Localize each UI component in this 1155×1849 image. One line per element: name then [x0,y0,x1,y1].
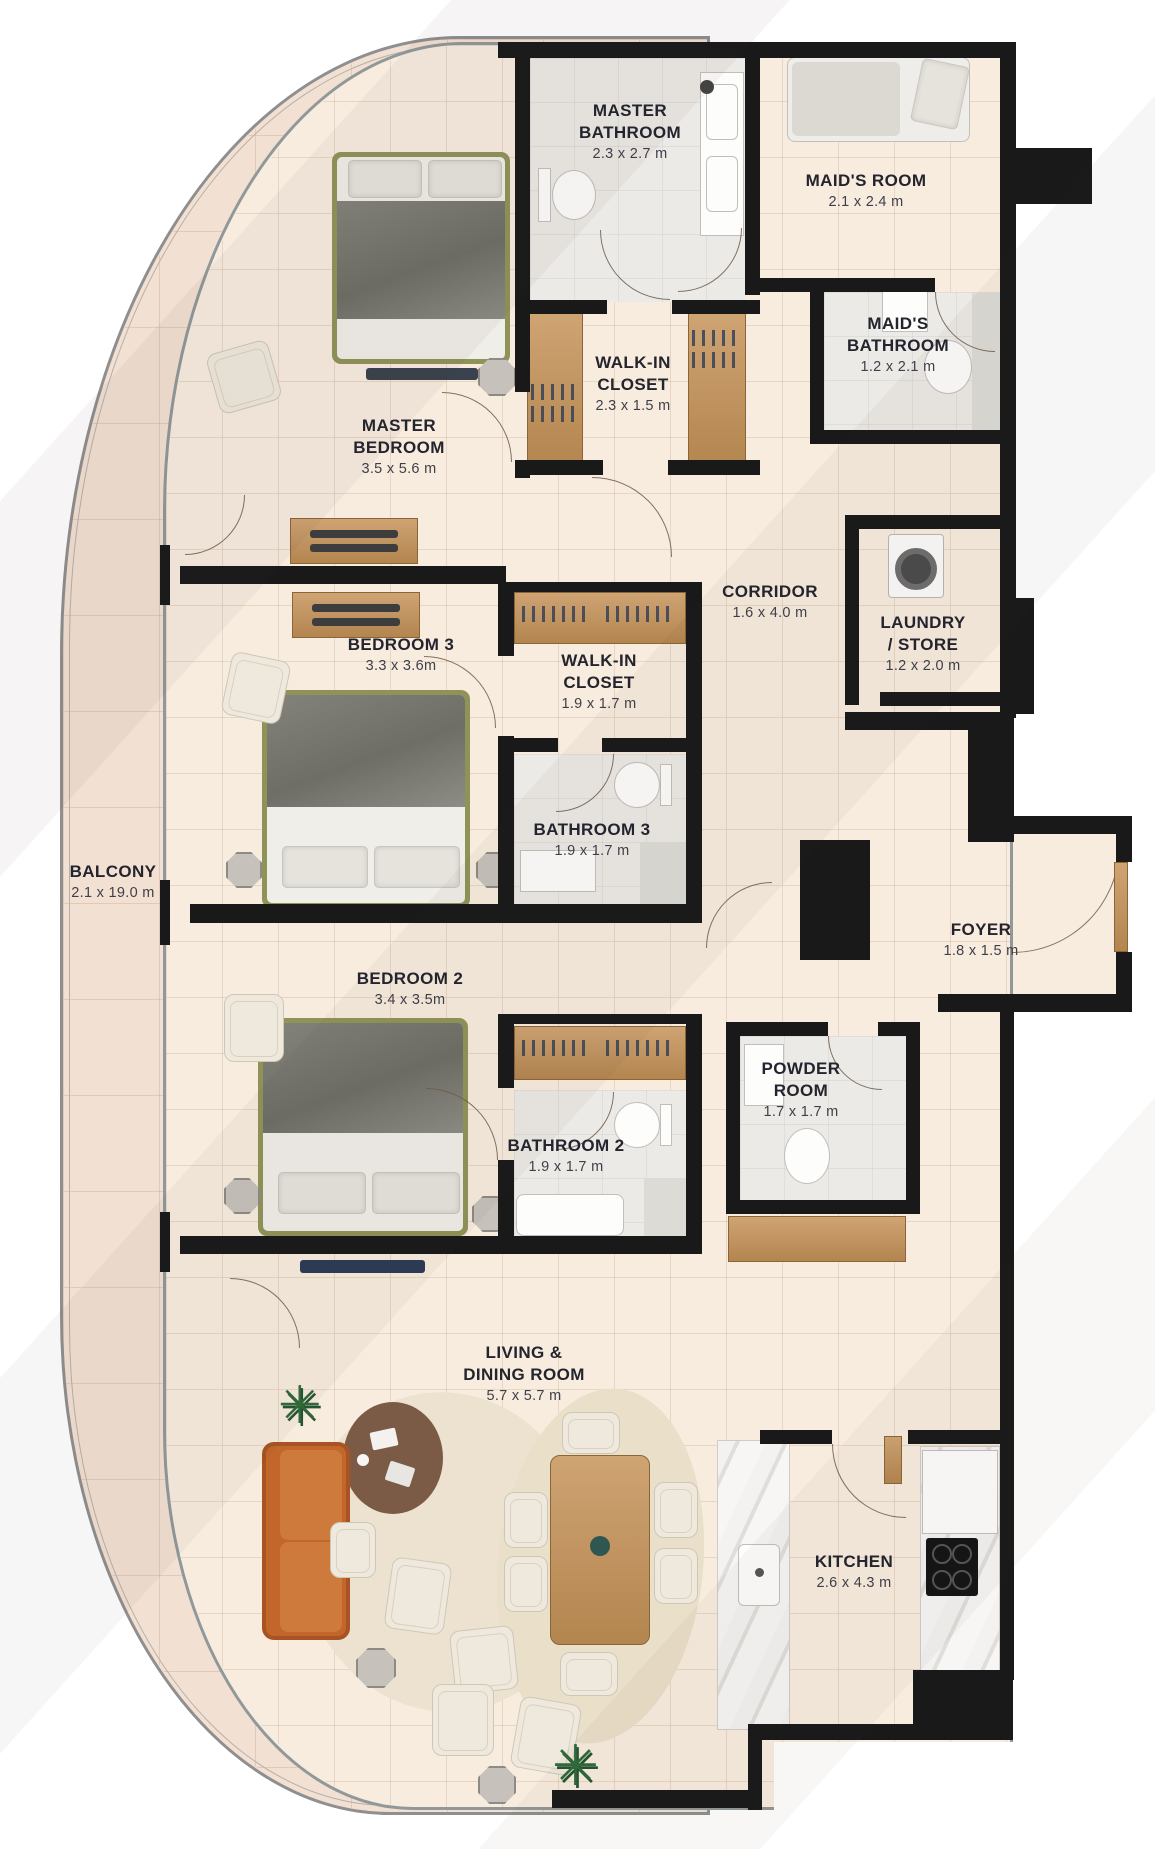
dining-chair [654,1482,698,1538]
room-label-maids-bathroom: MAID'SBATHROOM1.2 x 2.1 m [847,313,949,375]
room-dimensions: 2.1 x 19.0 m [70,885,157,901]
wall-masterbed-bed3 [180,566,506,584]
hall-console [728,1216,906,1262]
wall-powder-top-a [726,1022,828,1036]
toilet-bathroom-3 [614,762,660,808]
room-name: CLOSET [595,374,671,396]
room-name: BATHROOM [847,335,949,357]
room-name: MAID'S [847,313,949,335]
room-dimensions: 2.6 x 4.3 m [815,1575,893,1591]
wall-bed3-bed2 [190,904,702,923]
wall-hall-block [800,840,870,960]
bedroom-3-stool [226,852,262,888]
wall-hall-top [845,712,973,730]
living-side-table [356,1648,396,1688]
room-label-maids-room: MAID'S ROOM2.1 x 2.4 m [806,170,927,210]
room-name: MASTER [579,100,681,122]
room-name: ROOM [762,1080,841,1102]
room-name: / STORE [880,634,965,656]
room-name: CLOSET [561,672,637,694]
living-armchair [383,1556,452,1636]
room-name: BATHROOM 2 [507,1135,624,1157]
wall-bath3-divider-b [602,738,686,752]
wall-laundry-bottom [880,692,1016,706]
room-label-bedroom-2: BEDROOM 23.4 x 3.5m [357,968,464,1008]
wall-masterbath-right [745,42,760,295]
shower-bathroom-2 [644,1178,686,1236]
room-name: POWDER [762,1058,841,1080]
sink-master-2 [706,156,738,212]
room-name: WALK-IN [595,352,671,374]
room-name: BEDROOM 3 [348,634,455,656]
plant-icon: ✳ [552,1738,599,1794]
wall-laundry-left [845,515,859,705]
room-name: KITCHEN [815,1551,893,1573]
room-name: BATHROOM 3 [533,819,650,841]
toilet-tank-3 [660,764,672,806]
room-label-powder-room: POWDERROOM1.7 x 1.7 m [762,1058,841,1120]
toilet-powder-room [784,1128,830,1184]
toilet-tank [538,168,551,222]
wall-powder-right [906,1022,920,1214]
wall-closet2-top [498,582,702,592]
wall-closet1-bottom-a [515,460,603,475]
wall-closet1-bottom-b [668,460,760,475]
room-name: MASTER [353,415,445,437]
room-label-walk-in-closet-master: WALK-INCLOSET2.3 x 1.5 m [595,352,671,414]
master-bed-bench [366,368,478,380]
maids-bed-blanket [792,62,900,136]
bathtub-bathroom-2 [516,1194,624,1236]
room-dimensions: 5.7 x 5.7 m [463,1388,585,1404]
wall-bed2-living [180,1236,702,1254]
shower-head-icon [700,80,714,94]
wall-right-protrusion-1 [1008,148,1092,204]
room-dimensions: 1.2 x 2.0 m [880,658,965,674]
wall-foyer-bottom [938,994,1132,1012]
kitchen-door-leaf [884,1436,902,1484]
wall-masterbath-bottom-a [515,300,607,314]
wall-kitchen-top-a [760,1430,832,1444]
bedroom-3-dresser [292,592,420,638]
wall-living-bottom [552,1790,762,1808]
washing-machine [888,534,944,598]
outside-mask [774,1742,1020,1816]
toilet-master-bathroom [552,170,596,220]
room-dimensions: 1.2 x 2.1 m [847,359,949,375]
room-dimensions: 1.9 x 1.7 m [561,696,637,712]
room-name: WALK-IN [561,650,637,672]
living-armchair [432,1684,494,1756]
wall-right-lower [1000,1012,1014,1436]
room-label-foyer: FOYER1.8 x 1.5 m [943,919,1018,959]
dining-chair [504,1556,548,1612]
bedroom-3-pillow [282,846,368,888]
room-label-bathroom-3: BATHROOM 31.9 x 1.7 m [533,819,650,859]
wall-bath3-divider-a [514,738,558,752]
wall-kitchen-bottom [760,1724,1013,1740]
wall-maidsroom-bottom [760,278,935,292]
centerpiece-bowl [590,1536,610,1556]
room-label-master-bathroom: MASTERBATHROOM2.3 x 2.7 m [579,100,681,162]
room-dimensions: 1.7 x 1.7 m [762,1104,841,1120]
bedroom-2-pillow [372,1172,460,1214]
wall-closet2-left-a [498,582,514,656]
living-pouf [330,1522,376,1578]
wall-closet3-left-a [498,1014,514,1088]
room-label-balcony: BALCONY2.1 x 19.0 m [70,861,157,901]
bedroom-2-stool [224,1178,260,1214]
room-dimensions: 2.3 x 2.7 m [579,146,681,162]
wall-closet3-top [498,1014,702,1024]
dining-chair [560,1652,618,1696]
room-label-living-dining: LIVING &DINING ROOM5.7 x 5.7 m [463,1342,585,1404]
wall-kitchen-top-b [908,1430,1014,1444]
room-label-master-bedroom: MASTERBEDROOM3.5 x 5.6 m [353,415,445,477]
dining-chair [654,1548,698,1604]
room-dimensions: 2.1 x 2.4 m [806,194,927,210]
room-dimensions: 3.5 x 5.6 m [353,461,445,477]
wall-foyer-top [1010,816,1132,834]
wall-masterbath-left-a [515,58,530,392]
room-name: FOYER [943,919,1018,941]
wall-foyer-right-a [1116,816,1132,862]
room-name: CORRIDOR [722,581,818,603]
room-dimensions: 1.9 x 1.7 m [507,1159,624,1175]
plant-icon: ✳ [278,1380,322,1432]
room-name: BALCONY [70,861,157,883]
living-bench [300,1260,425,1273]
room-label-bathroom-2: BATHROOM 21.9 x 1.7 m [507,1135,624,1175]
wall-maidsbath-left [810,292,824,432]
wall-kitchen-right [1000,1430,1014,1680]
room-label-kitchen: KITCHEN2.6 x 4.3 m [815,1551,893,1591]
kitchen-fridge [922,1450,998,1534]
room-name: BATHROOM [579,122,681,144]
bedroom-2-pillow [278,1172,366,1214]
wall-stub-3 [160,1212,170,1272]
room-label-laundry-store: LAUNDRY/ STORE1.2 x 2.0 m [880,612,965,674]
room-dimensions: 3.3 x 3.6m [348,658,455,674]
wall-stub-1 [160,545,170,605]
room-dimensions: 1.6 x 4.0 m [722,605,818,621]
room-name: LIVING & [463,1342,585,1364]
wall-powder-left [726,1022,740,1214]
room-name: LAUNDRY [880,612,965,634]
room-label-corridor: CORRIDOR1.6 x 4.0 m [722,581,818,621]
wall-laundry-top [845,515,1005,529]
master-bed-pillow [428,160,502,198]
room-dimensions: 1.8 x 1.5 m [943,943,1018,959]
wall-closet2-right [686,582,702,906]
coffee-table [343,1402,443,1514]
room-name: MAID'S ROOM [806,170,927,192]
room-name: BEDROOM [353,437,445,459]
dining-chair [504,1492,548,1548]
room-label-bedroom-3: BEDROOM 33.3 x 3.6m [348,634,455,674]
bedroom-3-pillow [374,846,460,888]
wall-powder-bottom [726,1200,920,1214]
stove [926,1538,978,1596]
room-name: BEDROOM 2 [357,968,464,990]
room-dimensions: 3.4 x 3.5m [357,992,464,1008]
master-bedroom-dresser [290,518,418,564]
master-bedroom-stool [478,358,516,396]
wall-closet3-right [686,1014,702,1254]
room-label-walk-in-closet-2: WALK-INCLOSET1.9 x 1.7 m [561,650,637,712]
wall-closet2-left-b [498,736,514,906]
wall-hall-step [968,712,1014,842]
dining-chair [562,1412,620,1454]
floor-plan: ✳ ✳ MASTERBATHROOM2.3 x 2.7 mMAID'S ROOM… [0,0,1155,1849]
room-dimensions: 1.9 x 1.7 m [533,843,650,859]
faucet-icon [755,1568,764,1577]
wall-maidsbath-bottom [810,430,1016,444]
bedroom-2-armchair [224,994,284,1062]
room-dimensions: 2.3 x 1.5 m [595,398,671,414]
room-name: DINING ROOM [463,1364,585,1386]
wall-stub-2 [160,880,170,945]
wall-masterbath-bottom-b [672,300,760,314]
master-bed-pillow [348,160,422,198]
entry-threshold [1114,862,1128,952]
toilet-tank-2 [660,1104,672,1146]
